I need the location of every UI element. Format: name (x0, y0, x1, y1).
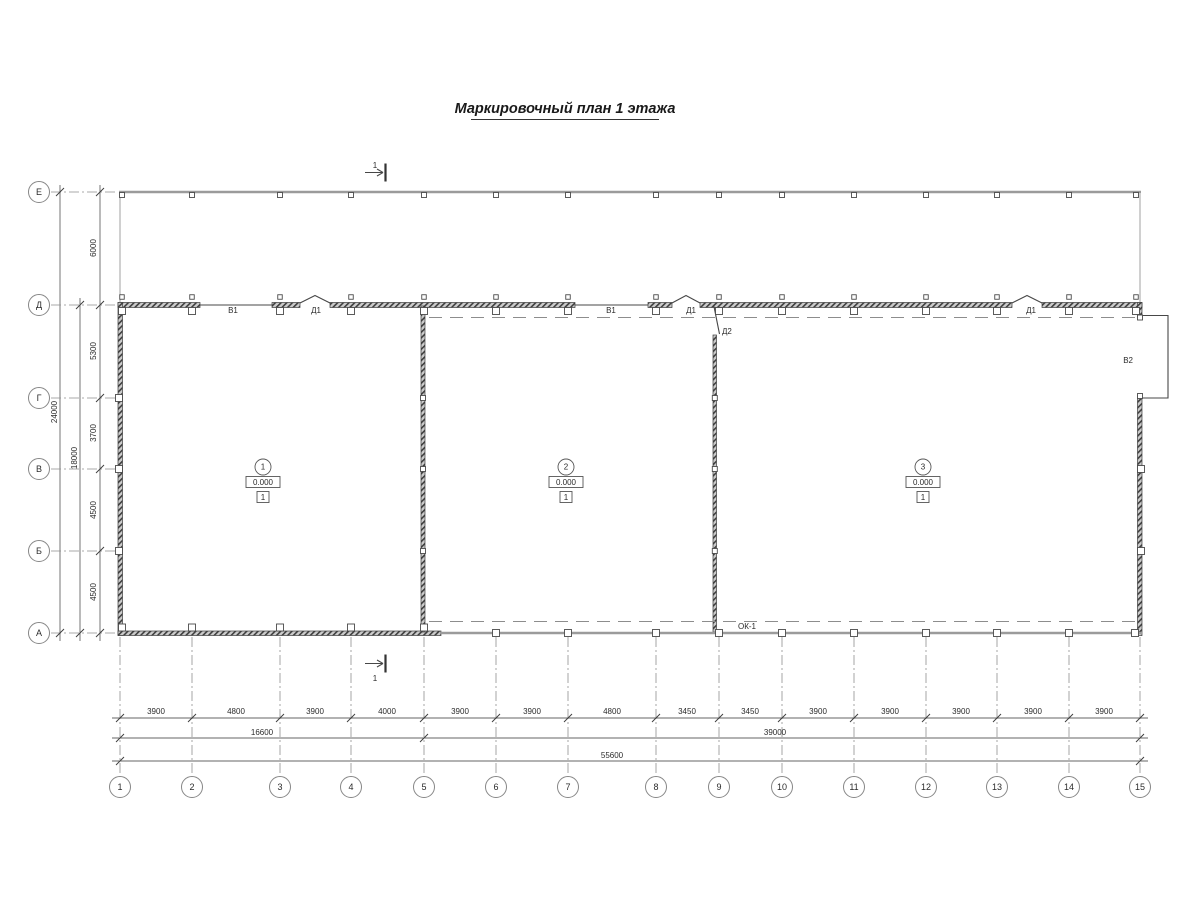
section-marker-top: 1 (365, 161, 386, 182)
dimension-value: 3900 (1095, 707, 1113, 716)
floor-type: 1 (261, 493, 266, 502)
column-mark (421, 467, 426, 472)
column-mark (190, 193, 195, 198)
column-mark (1067, 295, 1072, 300)
column-mark (421, 549, 426, 554)
column-mark (116, 466, 123, 473)
column-axis-label: 8 (653, 782, 658, 792)
column-mark (565, 308, 572, 315)
openings-geometry (200, 296, 1168, 399)
column-axis-label: 11 (849, 782, 858, 792)
floor-type: 1 (921, 493, 926, 502)
dimension-value: 3900 (451, 707, 469, 716)
column-mark (852, 295, 857, 300)
column-mark (565, 630, 572, 637)
door-d1-swing (300, 296, 330, 304)
column-mark (852, 193, 857, 198)
column-mark (348, 624, 355, 631)
gate-b2-label: В2 (1123, 356, 1133, 365)
column-axis-label: 9 (716, 782, 721, 792)
row-axis-label: Г (37, 393, 42, 403)
column-mark (712, 396, 717, 401)
column-mark (1067, 193, 1072, 198)
column-mark (717, 295, 722, 300)
dimension-value: 4800 (227, 707, 245, 716)
canopy-structure (119, 192, 1141, 302)
column-mark (995, 295, 1000, 300)
column-mark (653, 630, 660, 637)
dimension-value: 4800 (603, 707, 621, 716)
section-label: 1 (373, 674, 378, 683)
dimension-value: 6000 (89, 239, 98, 257)
door-d1-label: Д1 (686, 306, 696, 315)
door-d2-label: Д2 (722, 327, 732, 336)
column-mark (349, 193, 354, 198)
dimension-value: 3900 (881, 707, 899, 716)
column-mark (717, 193, 722, 198)
column-mark (1138, 315, 1143, 320)
door-d1-label: Д1 (311, 306, 321, 315)
section-label: 1 (373, 161, 378, 170)
column-mark (779, 308, 786, 315)
column-mark (995, 193, 1000, 198)
dimension-value: 5300 (89, 342, 98, 360)
column-mark (994, 308, 1001, 315)
column-mark (278, 193, 283, 198)
column-mark (566, 295, 571, 300)
column-axis-label: 4 (348, 782, 353, 792)
column-mark (189, 624, 196, 631)
column-mark (712, 549, 717, 554)
column-mark (190, 295, 195, 300)
column-mark (566, 193, 571, 198)
dimension-subtotal-left: 18000 (70, 446, 79, 469)
wall-d-segment (330, 303, 575, 308)
column-mark (923, 630, 930, 637)
wall-d-segment (272, 303, 300, 308)
column-mark (712, 467, 717, 472)
wall-d-segment (118, 303, 200, 308)
column-mark (1066, 630, 1073, 637)
column-mark (851, 630, 858, 637)
column-mark (923, 308, 930, 315)
wall-right-lower (1138, 396, 1143, 636)
room-elevation: 0.000 (913, 478, 934, 487)
column-axis-label: 15 (1135, 782, 1145, 792)
column-mark (716, 308, 723, 315)
window-b1-label: В1 (228, 306, 238, 315)
column-axis-label: 5 (421, 782, 426, 792)
column-mark (654, 295, 659, 300)
dimension-value: 3450 (678, 707, 696, 716)
column-axis-label: 6 (493, 782, 498, 792)
column-mark (1138, 466, 1145, 473)
room-elevation: 0.000 (253, 478, 274, 487)
column-mark (780, 295, 785, 300)
column-axis-label: 13 (992, 782, 1002, 792)
section-marker-bottom: 1 (365, 655, 386, 684)
column-mark (277, 624, 284, 631)
column-mark (494, 193, 499, 198)
dimension-value: 3900 (809, 707, 827, 716)
column-mark (189, 308, 196, 315)
exterior-walls (118, 303, 1142, 636)
column-axis-label: 1 (117, 782, 122, 792)
column-mark (120, 193, 125, 198)
column-mark (494, 295, 499, 300)
column-mark (348, 308, 355, 315)
gate-b2-panel (1142, 316, 1168, 399)
column-mark (421, 308, 428, 315)
dimension-value: 3900 (1024, 707, 1042, 716)
column-mark (653, 308, 660, 315)
column-mark (493, 630, 500, 637)
column-mark (779, 630, 786, 637)
column-axis-label: 12 (921, 782, 931, 792)
door-d1-swing (672, 296, 700, 304)
row-axis-label: Д (36, 300, 42, 310)
column-mark (493, 308, 500, 315)
floor-plan-svg: Маркировочный план 1 этажа (0, 0, 1200, 900)
door-d1-swing (1012, 296, 1042, 304)
drawing-canvas: Маркировочный план 1 этажа (0, 0, 1200, 900)
column-mark (422, 295, 427, 300)
column-mark (994, 630, 1001, 637)
room-elevation: 0.000 (556, 478, 577, 487)
wall-d-segment (648, 303, 672, 308)
column-axis-label: 3 (277, 782, 282, 792)
column-mark (654, 193, 659, 198)
column-mark (1134, 193, 1139, 198)
row-axis-label: А (36, 628, 42, 638)
row-axis-label: Е (36, 187, 42, 197)
column-mark (119, 308, 126, 315)
column-mark (851, 308, 858, 315)
dimension-value: 3450 (741, 707, 759, 716)
column-mark (116, 395, 123, 402)
room-number: 1 (261, 463, 266, 472)
column-axis-label: 7 (565, 782, 570, 792)
column-mark (422, 193, 427, 198)
column-mark (277, 308, 284, 315)
dimension-total-left: 24000 (50, 400, 59, 423)
column-mark (421, 624, 428, 631)
column-mark (1138, 394, 1143, 399)
column-mark (1133, 308, 1140, 315)
wall-d-segment (700, 303, 1012, 308)
wall-bottom-room1 (118, 631, 441, 636)
room-marker-2: 2 0.000 1 (549, 459, 583, 503)
dimension-value: 3900 (952, 707, 970, 716)
column-mark (116, 548, 123, 555)
dimension-value: 4500 (89, 583, 98, 601)
wall-d-segment (1042, 303, 1142, 308)
row-axis-label: В (36, 464, 42, 474)
dimension-total: 55600 (601, 751, 624, 760)
dimension-value: 4000 (378, 707, 396, 716)
plan-title: Маркировочный план 1 этажа (455, 101, 676, 117)
door-d1-label: Д1 (1026, 306, 1036, 315)
room-number: 2 (564, 463, 569, 472)
dimension-value: 3900 (147, 707, 165, 716)
dimension-value: 4500 (89, 501, 98, 519)
column-mark (716, 630, 723, 637)
dimension-subtotal: 39000 (764, 728, 787, 737)
dimension-value: 3700 (89, 424, 98, 442)
window-b1-label: В1 (606, 306, 616, 315)
column-mark (119, 624, 126, 631)
room-marker-3: 3 0.000 1 (906, 459, 940, 503)
column-mark (1134, 295, 1139, 300)
column-mark (1138, 548, 1145, 555)
column-axis-label: 10 (777, 782, 787, 792)
column-mark (924, 295, 929, 300)
column-mark (1066, 308, 1073, 315)
generated-grid-elements: 1390024800339004400053900639007480083450… (29, 182, 1151, 798)
column-mark (349, 295, 354, 300)
floor-type: 1 (564, 493, 569, 502)
dimension-subtotal: 16600 (251, 728, 274, 737)
room-number: 3 (921, 463, 926, 472)
dimension-value: 3900 (306, 707, 324, 716)
dimension-lines (60, 185, 1148, 761)
column-axis-label: 14 (1064, 782, 1074, 792)
wall-interior-2 (713, 335, 717, 632)
column-mark (120, 295, 125, 300)
column-axis-label: 2 (189, 782, 194, 792)
column-mark (924, 193, 929, 198)
column-mark (421, 396, 426, 401)
opening-labels: В1 Д1 В1 Д1 Д2 Д1 В2 ОК-1 (228, 306, 1133, 631)
room-marker-1: 1 0.000 1 (246, 459, 280, 503)
row-axis-label: Б (36, 546, 42, 556)
column-mark (278, 295, 283, 300)
window-ok1-label: ОК-1 (738, 622, 757, 631)
dimension-value: 3900 (523, 707, 541, 716)
column-mark (1132, 630, 1139, 637)
column-mark (780, 193, 785, 198)
